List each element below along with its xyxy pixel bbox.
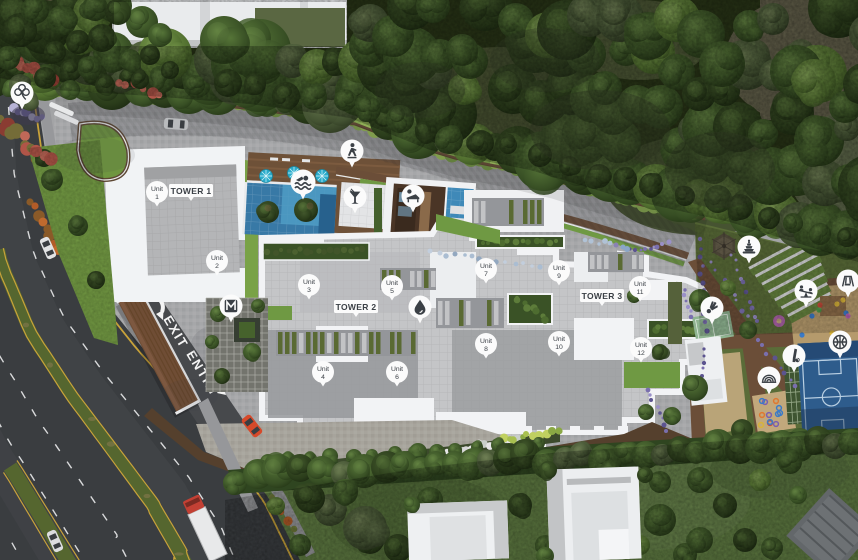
svg-text:Unit: Unit [317,366,329,373]
svg-text:Unit: Unit [635,342,647,349]
svg-text:Unit: Unit [151,186,163,193]
svg-text:Unit: Unit [480,263,492,270]
svg-text:8: 8 [484,346,488,353]
svg-text:TOWER 3: TOWER 3 [582,291,623,301]
svg-text:Unit: Unit [553,265,565,272]
svg-text:Unit: Unit [386,280,398,287]
svg-text:Unit: Unit [480,338,492,345]
svg-text:Unit: Unit [634,281,646,288]
svg-text:2: 2 [215,263,219,270]
svg-text:TOWER 2: TOWER 2 [336,302,377,312]
svg-text:Unit: Unit [211,255,223,262]
svg-text:9: 9 [557,273,561,280]
svg-text:12: 12 [637,350,645,357]
svg-text:6: 6 [395,374,399,381]
svg-text:4: 4 [321,374,325,381]
svg-text:10: 10 [555,344,563,351]
svg-text:1: 1 [155,194,159,201]
svg-text:TOWER 1: TOWER 1 [171,186,212,196]
svg-text:3: 3 [307,287,311,294]
svg-text:7: 7 [484,271,488,278]
svg-text:11: 11 [636,289,643,296]
svg-text:Unit: Unit [391,366,403,373]
svg-text:Unit: Unit [303,279,315,286]
svg-text:5: 5 [390,288,394,295]
svg-text:Unit: Unit [553,336,565,343]
